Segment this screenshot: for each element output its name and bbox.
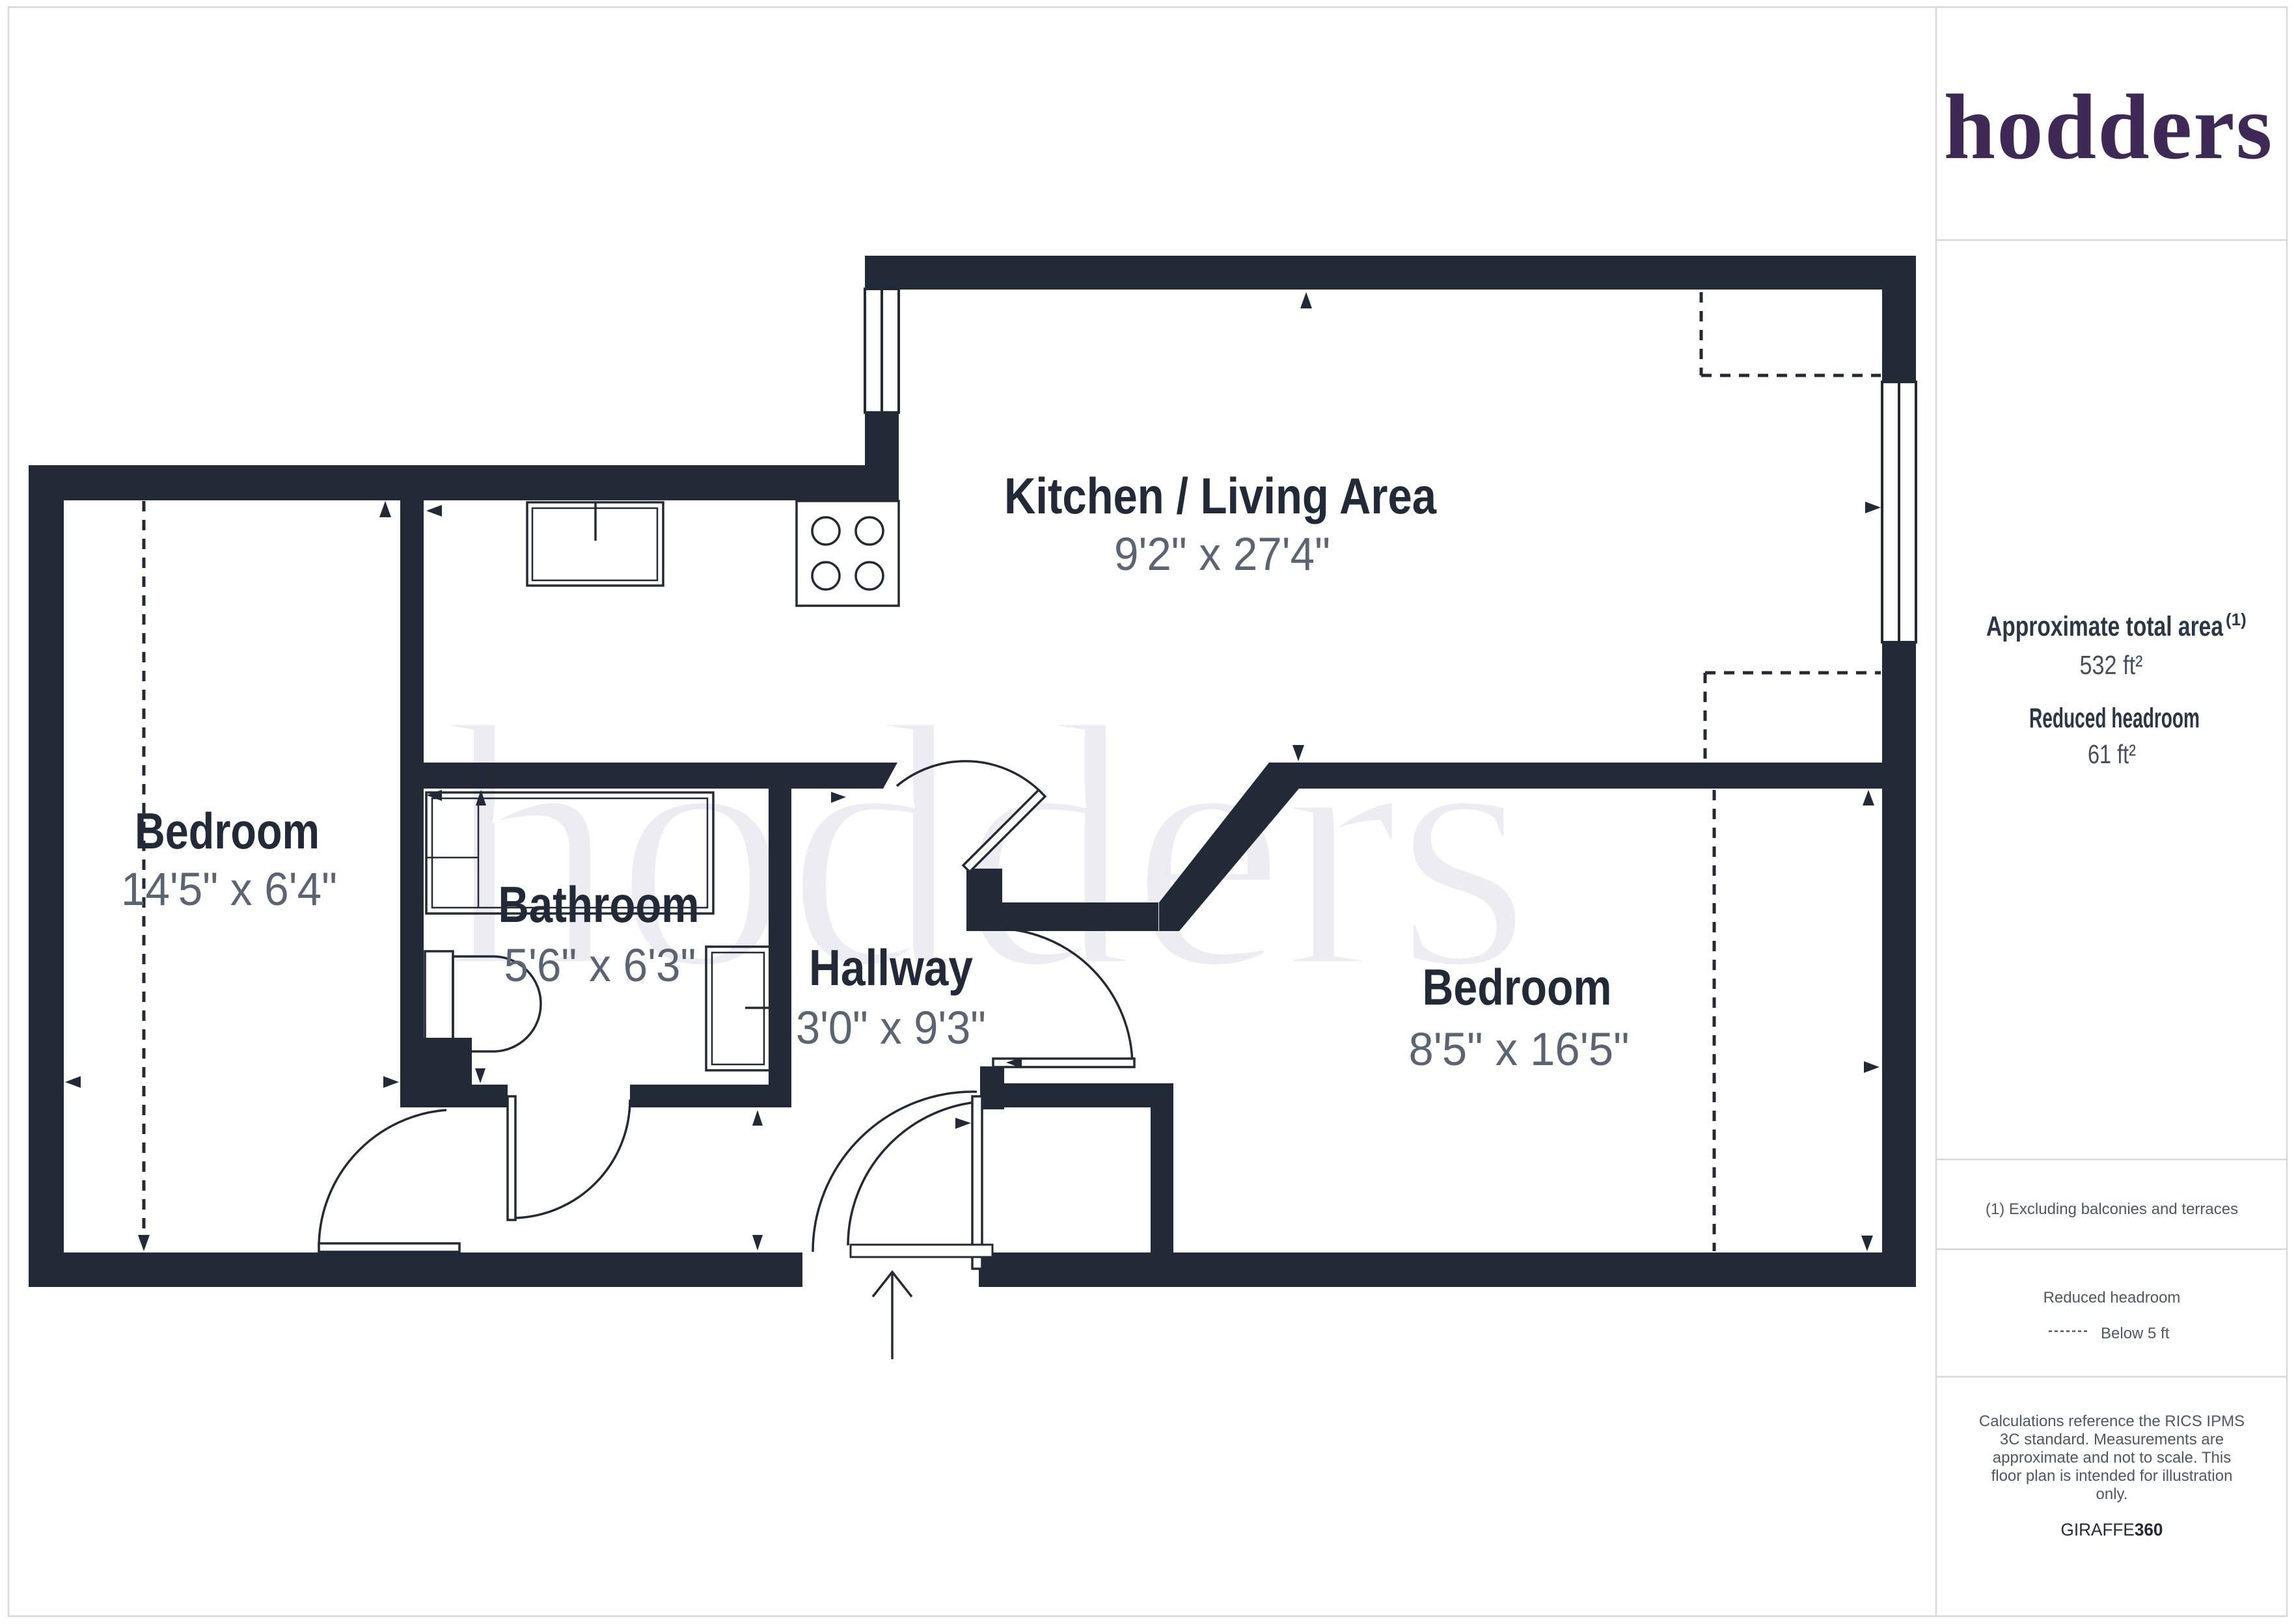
svg-text:Reduced headroom: Reduced headroom [2043, 1289, 2181, 1306]
svg-text:floor plan is intended for ill: floor plan is intended for illustration [1991, 1467, 2233, 1485]
svg-text:Below 5 ft: Below 5 ft [2101, 1325, 2170, 1342]
svg-text:hodders: hodders [1944, 75, 2274, 178]
svg-text:Bedroom: Bedroom [1423, 958, 1612, 1016]
svg-text:Kitchen / Living Area: Kitchen / Living Area [1004, 467, 1437, 524]
svg-text:(1): (1) [2226, 610, 2247, 629]
svg-text:GIRAFFE360: GIRAFFE360 [2061, 1520, 2163, 1539]
svg-text:only.: only. [2096, 1485, 2128, 1503]
svg-text:3'0" x 9'3": 3'0" x 9'3" [796, 1003, 986, 1054]
svg-text:Bedroom: Bedroom [135, 802, 320, 859]
svg-text:61 ft²: 61 ft² [2088, 739, 2136, 769]
svg-text:approximate and not to scale.: approximate and not to scale. This [1993, 1449, 2231, 1467]
svg-text:Reduced headroom: Reduced headroom [2029, 703, 2200, 734]
svg-text:(1) Excluding balconies and te: (1) Excluding balconies and terraces [1986, 1200, 2238, 1218]
svg-text:532 ft²: 532 ft² [2080, 650, 2143, 680]
svg-text:5'6" x 6'3": 5'6" x 6'3" [504, 940, 696, 992]
svg-text:3C standard. Measurements are: 3C standard. Measurements are [2000, 1431, 2224, 1448]
svg-text:Calculations reference the RIC: Calculations reference the RICS IPMS [1979, 1413, 2245, 1430]
svg-text:Bathroom: Bathroom [499, 876, 700, 933]
svg-text:8'5" x 16'5": 8'5" x 16'5" [1409, 1024, 1630, 1076]
svg-text:14'5" x 6'4": 14'5" x 6'4" [121, 864, 337, 915]
svg-text:9'2" x 27'4": 9'2" x 27'4" [1114, 529, 1330, 580]
svg-text:Approximate total area: Approximate total area [1986, 611, 2224, 642]
svg-text:Hallway: Hallway [809, 939, 973, 996]
